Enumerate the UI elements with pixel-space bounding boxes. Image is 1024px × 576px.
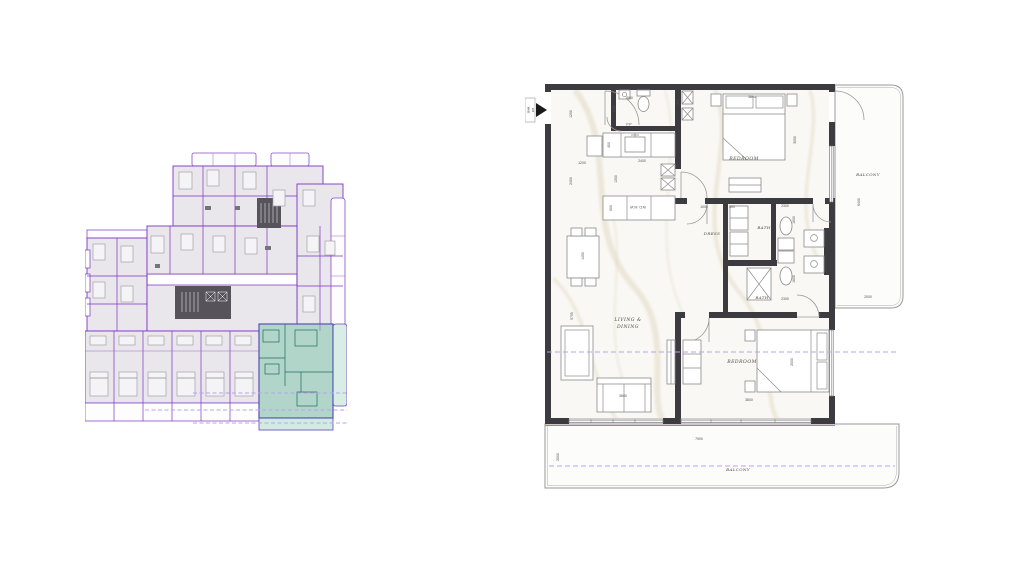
dim-bath-bottom-depth: 1600 — [792, 275, 796, 283]
dim-bath-bottom-width: 2300 — [781, 297, 789, 301]
label-bedroom-bottom: BEDROOM — [726, 359, 757, 365]
dim-dress-width: 1000 — [700, 205, 708, 209]
dim-closet-width: 500 — [729, 205, 735, 209]
dim-kitchen-clear: 1200 — [578, 161, 586, 165]
floor-plan-page: 2BHK 305 BEDROOM DRESS BATH BATH LIVING … — [0, 0, 1024, 576]
dim-bath-top-depth: 1600 — [792, 216, 796, 224]
label-bath-bottom: BATH — [754, 295, 768, 300]
label-bedroom-top: BEDROOM — [728, 156, 759, 162]
label-balcony-bottom: BALCONY — [725, 467, 750, 472]
dim-rbalcony-length: 6400 — [857, 198, 861, 206]
entry-tag-type: 2BHK — [527, 106, 531, 113]
dim-sofa-length: 3600 — [619, 394, 627, 398]
label-living-2: DINING — [616, 324, 639, 330]
overview-plan — [85, 146, 347, 431]
entry-arrow-icon — [536, 103, 547, 117]
dim-bath-top-width: 2300 — [781, 204, 789, 208]
dim-shaft: 300 — [676, 99, 680, 105]
dim-rbalcony-width: 2000 — [864, 295, 872, 299]
dim-dining-table: 1450 — [581, 252, 585, 260]
entry-tag-number: 305 — [531, 107, 535, 112]
dim-utility-depth: 600 — [609, 205, 613, 211]
dim-left-wall: 2400 — [569, 177, 573, 185]
label-powder-room: P.P — [626, 123, 632, 127]
stair-core — [175, 286, 231, 319]
dim-hall-top: 1500 — [625, 96, 633, 100]
dim-entry-width: 1200 — [569, 110, 573, 118]
dim-bed2-width: 3800 — [745, 398, 753, 402]
highlighted-unit-side-balcony[interactable] — [333, 324, 347, 406]
highlighted-unit-bottom-balcony[interactable] — [259, 418, 333, 430]
label-balcony-right: BALCONY — [855, 172, 880, 177]
dim-bbalcony-length: 7900 — [695, 437, 703, 441]
dim-bed1-width: 3800 — [748, 95, 756, 99]
highlighted-unit[interactable] — [259, 324, 347, 430]
balcony-right — [835, 85, 903, 308]
dim-living-length: 5755 — [570, 312, 574, 320]
dim-counter-depth: 400 — [607, 142, 611, 148]
dim-kitchen-width: 2400 — [638, 159, 646, 163]
dim-bbalcony-depth: 2000 — [556, 453, 560, 461]
label-kitchen-units: W.D. M.W — [629, 205, 645, 209]
highlighted-unit-body[interactable] — [259, 324, 333, 418]
label-living-1: LIVING & — [613, 317, 641, 323]
unit-plan: 2BHK 305 BEDROOM DRESS BATH BATH LIVING … — [525, 78, 910, 493]
entry-marker: 2BHK 305 — [525, 98, 547, 122]
dim-entry-door: 1200 — [612, 105, 616, 113]
label-bath-top: BATH — [756, 225, 770, 230]
dim-bed1-depth: 3050 — [793, 136, 797, 144]
dim-bed2-depth: 2000 — [790, 358, 794, 366]
label-dress: DRESS — [703, 231, 721, 236]
dim-kitchen-depth: 1300 — [614, 175, 618, 183]
balcony-bottom — [545, 424, 899, 488]
